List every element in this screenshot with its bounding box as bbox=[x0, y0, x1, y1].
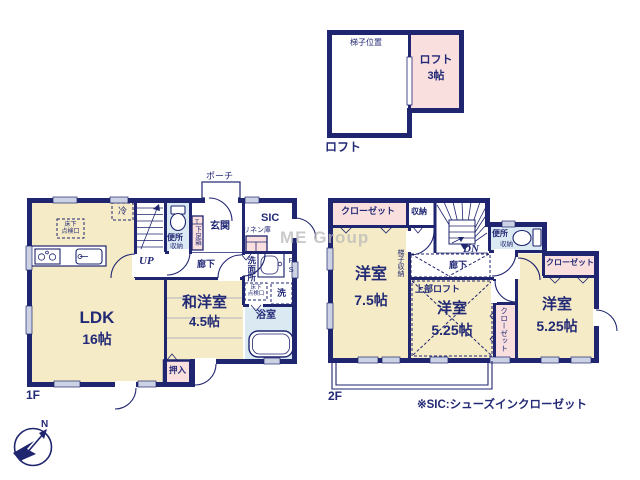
balcony-inner bbox=[336, 361, 488, 385]
stairs-1f bbox=[137, 204, 163, 249]
room-b-size-label: 5.25帖 bbox=[412, 322, 492, 338]
toilet-tank bbox=[533, 229, 541, 246]
window bbox=[490, 357, 510, 363]
toilet1-icon bbox=[171, 206, 186, 231]
gap bbox=[406, 231, 412, 252]
compass bbox=[13, 429, 52, 466]
bathtub-icon bbox=[249, 331, 293, 357]
balcony bbox=[332, 361, 492, 389]
window bbox=[26, 246, 32, 270]
sic-note: ※SIC:シューズインクローゼット bbox=[417, 399, 587, 412]
loft-size-label: 3帖 bbox=[413, 70, 459, 83]
washitsu-size-label: 4.5帖 bbox=[166, 315, 243, 330]
sic-label: SIC bbox=[261, 212, 279, 225]
door-arc-room-b bbox=[495, 281, 516, 302]
window bbox=[541, 357, 559, 363]
room-b-label: 洋室 bbox=[412, 300, 492, 317]
window bbox=[502, 221, 515, 227]
ladder-position-label: 梯子位置 bbox=[350, 38, 382, 47]
door-arc-toilet1 bbox=[167, 252, 190, 275]
closet-r-label: クローゼット bbox=[546, 258, 594, 267]
window bbox=[54, 381, 80, 387]
room-a-size-label: 7.5帖 bbox=[333, 292, 409, 308]
storage-label: 収納 bbox=[411, 207, 427, 216]
fridge-label: 冷 bbox=[118, 206, 127, 216]
dn-label: DN bbox=[463, 243, 479, 256]
f2-floor-label: 2F bbox=[328, 390, 342, 404]
closet-m-label: クローゼット bbox=[499, 307, 508, 352]
loft-room-label: ロフト bbox=[413, 54, 459, 67]
underfloor-line1: 床下 bbox=[64, 222, 76, 228]
shoebox-label: T下足箱 bbox=[193, 219, 200, 246]
compass-north-label: N bbox=[41, 419, 48, 431]
toilet1-label: 便所 bbox=[167, 233, 183, 242]
hall2-label: 廊下 bbox=[449, 260, 467, 270]
washer-label: 洗 bbox=[277, 288, 286, 298]
floorplan-page: 梯子位置 ロフト 3帖 ロフト 1F LDK 16帖 和洋室 4.5帖 押入 ポ… bbox=[0, 0, 640, 480]
toilet2-storage-label: 収納 bbox=[500, 241, 513, 248]
window bbox=[138, 381, 156, 387]
linen-box bbox=[246, 236, 267, 252]
f1-floor-label: 1F bbox=[26, 389, 40, 403]
loft-plan bbox=[330, 32, 462, 136]
toilet-bowl bbox=[171, 214, 186, 231]
stairs-2f bbox=[436, 202, 488, 253]
room-c-size-label: 5.25帖 bbox=[517, 318, 597, 334]
gap bbox=[218, 276, 240, 281]
window bbox=[430, 357, 448, 363]
loft-ladder-opening bbox=[407, 57, 412, 105]
oshiire-label: 押入 bbox=[164, 366, 191, 376]
gap bbox=[195, 358, 216, 365]
door-arc-washitsu-exterior bbox=[195, 364, 216, 385]
door-arc-toilet2 bbox=[492, 252, 516, 276]
ps-label: PS bbox=[286, 256, 295, 274]
door-arc-ldk-exterior bbox=[115, 388, 136, 409]
bath-label: 浴室 bbox=[256, 310, 276, 322]
stair-arrow-head bbox=[153, 204, 160, 211]
gap bbox=[132, 254, 138, 277]
underfloor-line2: 点検口 bbox=[61, 229, 79, 235]
toilet1-storage-label: 収納 bbox=[170, 243, 183, 250]
window bbox=[26, 306, 32, 334]
door-arc-washitsu bbox=[218, 255, 241, 278]
upper-loft-label: 上部ロフト bbox=[415, 284, 460, 294]
underfloor-washroom-label: 床下点検口 bbox=[246, 285, 266, 298]
gap bbox=[115, 381, 136, 388]
room-a-label: 洋室 bbox=[333, 266, 409, 284]
window bbox=[245, 197, 259, 203]
washroom-label: 洗面所 bbox=[246, 256, 256, 282]
room-c-label: 洋室 bbox=[517, 296, 597, 313]
toilet-bowl bbox=[513, 231, 531, 246]
underfloor-line2: 点検口 bbox=[248, 291, 265, 297]
window bbox=[358, 357, 378, 363]
kitchen-counter bbox=[31, 246, 106, 266]
up-label: UP bbox=[139, 255, 154, 268]
window bbox=[53, 197, 77, 203]
linen-label: リネン庫 bbox=[243, 227, 271, 235]
porch-label: ポーチ bbox=[206, 171, 233, 181]
compass-needle bbox=[13, 441, 36, 461]
window bbox=[110, 197, 128, 203]
ldk-fill bbox=[31, 202, 165, 383]
window bbox=[382, 357, 400, 363]
ldk-size-label: 16帖 bbox=[67, 331, 127, 347]
ldk-label: LDK bbox=[67, 308, 127, 328]
door-arc-room-a bbox=[410, 231, 434, 255]
window bbox=[571, 357, 591, 363]
hall1-label: 廊下 bbox=[197, 259, 215, 269]
loft-floor-label: ロフト bbox=[325, 141, 361, 155]
toilet-tank bbox=[171, 206, 185, 214]
watermark: ME Group bbox=[280, 228, 369, 248]
gap bbox=[494, 249, 515, 254]
genkan-label: 玄関 bbox=[210, 221, 230, 233]
toilet2-label: 便所 bbox=[492, 229, 508, 238]
window bbox=[264, 358, 280, 364]
stair-treads bbox=[137, 208, 163, 247]
closet-tl-label: クローゼット bbox=[341, 206, 395, 216]
porch-outline bbox=[202, 182, 240, 198]
washitsu-label: 和洋室 bbox=[166, 294, 243, 311]
toilet2-icon bbox=[513, 229, 541, 246]
underfloor-ldk-label: 床下点検口 bbox=[58, 222, 83, 236]
